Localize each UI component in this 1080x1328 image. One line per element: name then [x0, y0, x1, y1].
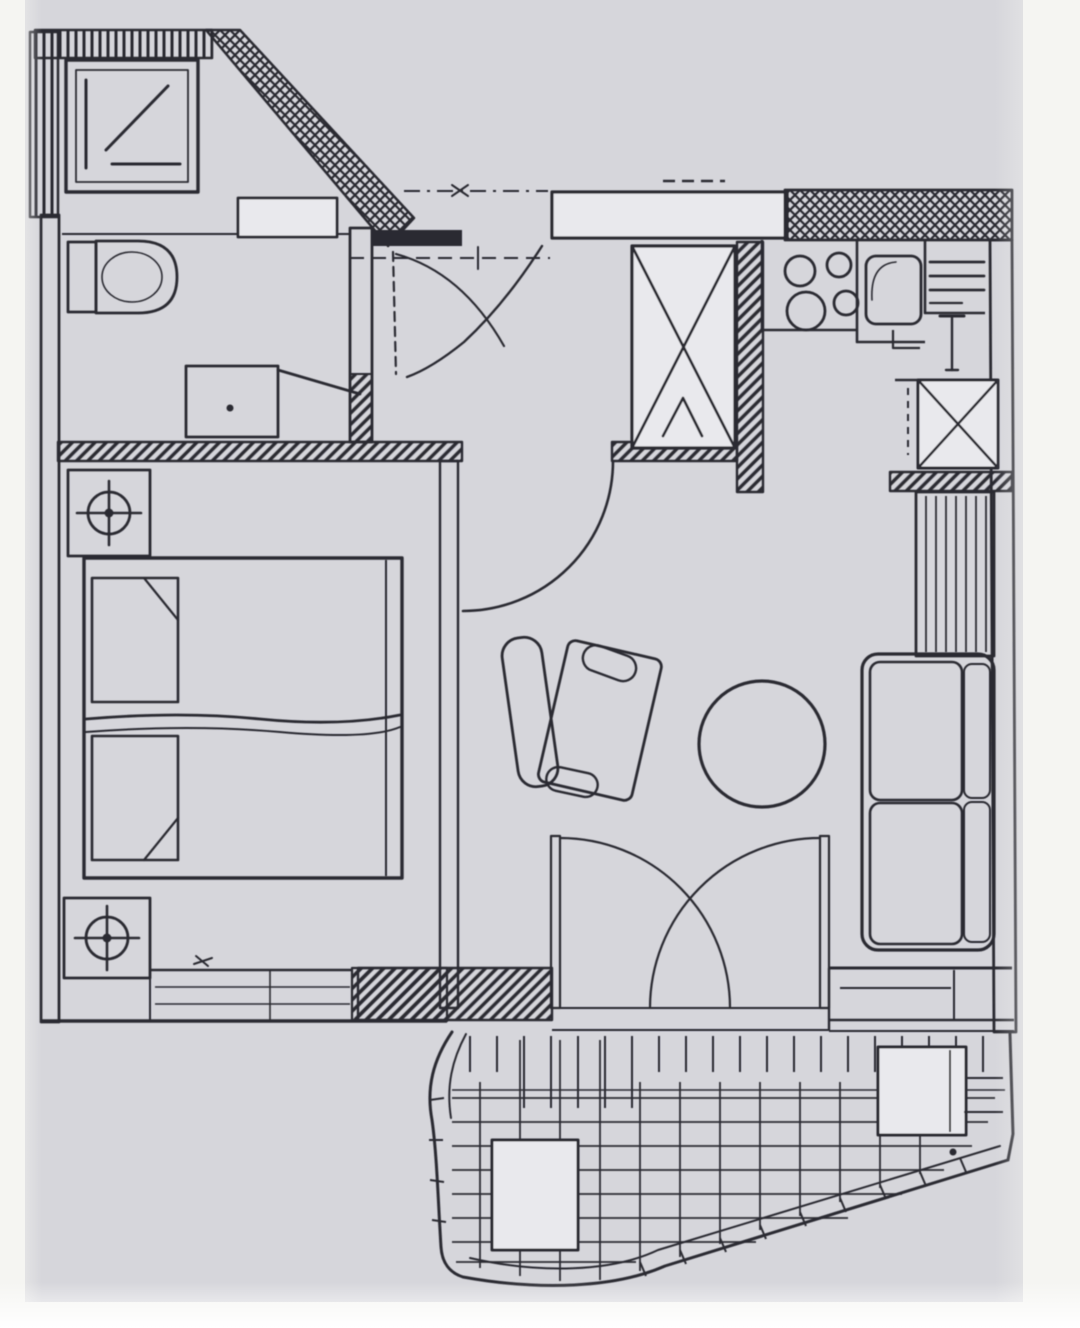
scan-edge-fade-right: [995, 0, 1080, 1328]
cross-hatched-wall-top-right: [785, 190, 1012, 240]
hatched-wall-balcony-left: [358, 968, 552, 1020]
floor-plan-scan: [0, 0, 1080, 1328]
wall-door-head: [372, 230, 462, 246]
scan-edge-fade-left: [0, 0, 42, 1328]
hatched-wall-wardrobe-kitchen: [737, 242, 763, 492]
hatched-door-jamb: [350, 374, 372, 442]
hatched-wall-top-left: [35, 30, 212, 58]
scan-edge-fade-bottom: [0, 1282, 1080, 1328]
hatched-wall-mid-left: [58, 442, 462, 461]
wall-niche: [552, 192, 787, 238]
floor-plan-svg: [0, 0, 1080, 1328]
built-in-wardrobe: [632, 246, 735, 448]
bathroom-cabinet: [238, 198, 337, 237]
hatched-wall-kitchen-living: [890, 472, 1012, 491]
balcony-table-left: [492, 1140, 578, 1250]
